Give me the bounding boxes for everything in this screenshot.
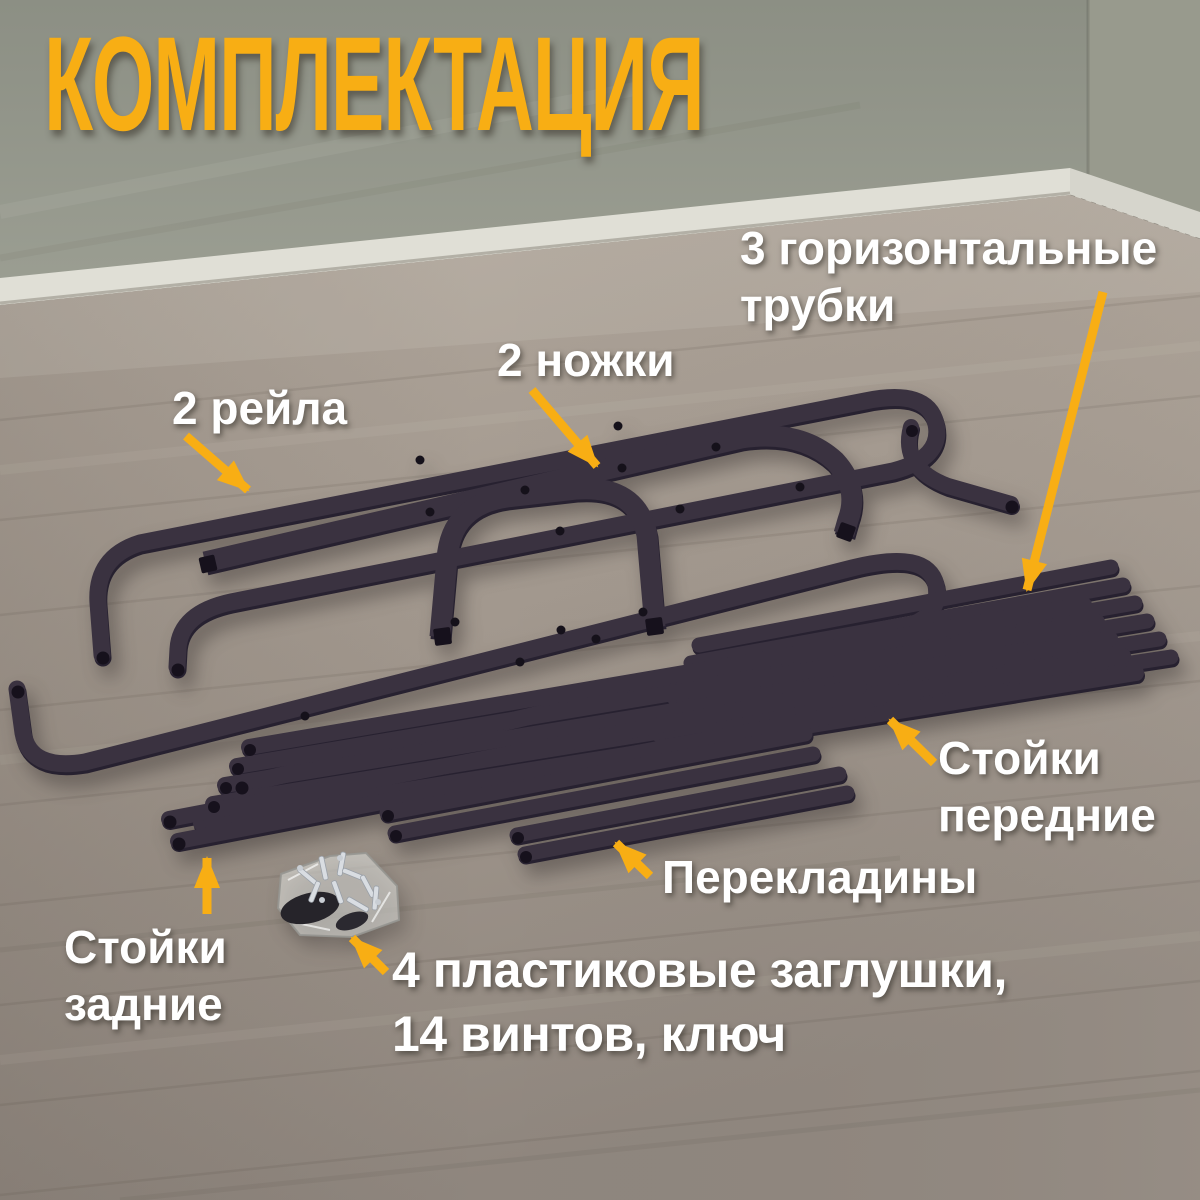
- label-rails: 2 рейла: [172, 380, 347, 437]
- page-title: КОМПЛЕКТАЦИЯ: [44, 18, 704, 152]
- arrow-legs: [532, 390, 597, 466]
- label-rear-stands: Стойки задние: [64, 919, 227, 1033]
- label-legs: 2 ножки: [497, 332, 675, 389]
- arrow-front-stands: [890, 720, 934, 763]
- arrow-hardware: [352, 938, 386, 972]
- arrow-rails: [186, 436, 248, 490]
- label-hardware: 4 пластиковые заглушки, 14 винтов, ключ: [392, 938, 1007, 1066]
- label-crossbars: Перекладины: [662, 849, 977, 906]
- arrow-horizontal-tubes: [1027, 292, 1103, 590]
- label-front-stands: Стойки передние: [938, 730, 1156, 844]
- label-horizontal-tubes: 3 горизонтальные трубки: [740, 220, 1157, 334]
- product-infographic: КОМПЛЕКТАЦИЯ 3 горизонтальные трубки 2 н…: [0, 0, 1200, 1200]
- arrow-crossbars: [616, 843, 650, 876]
